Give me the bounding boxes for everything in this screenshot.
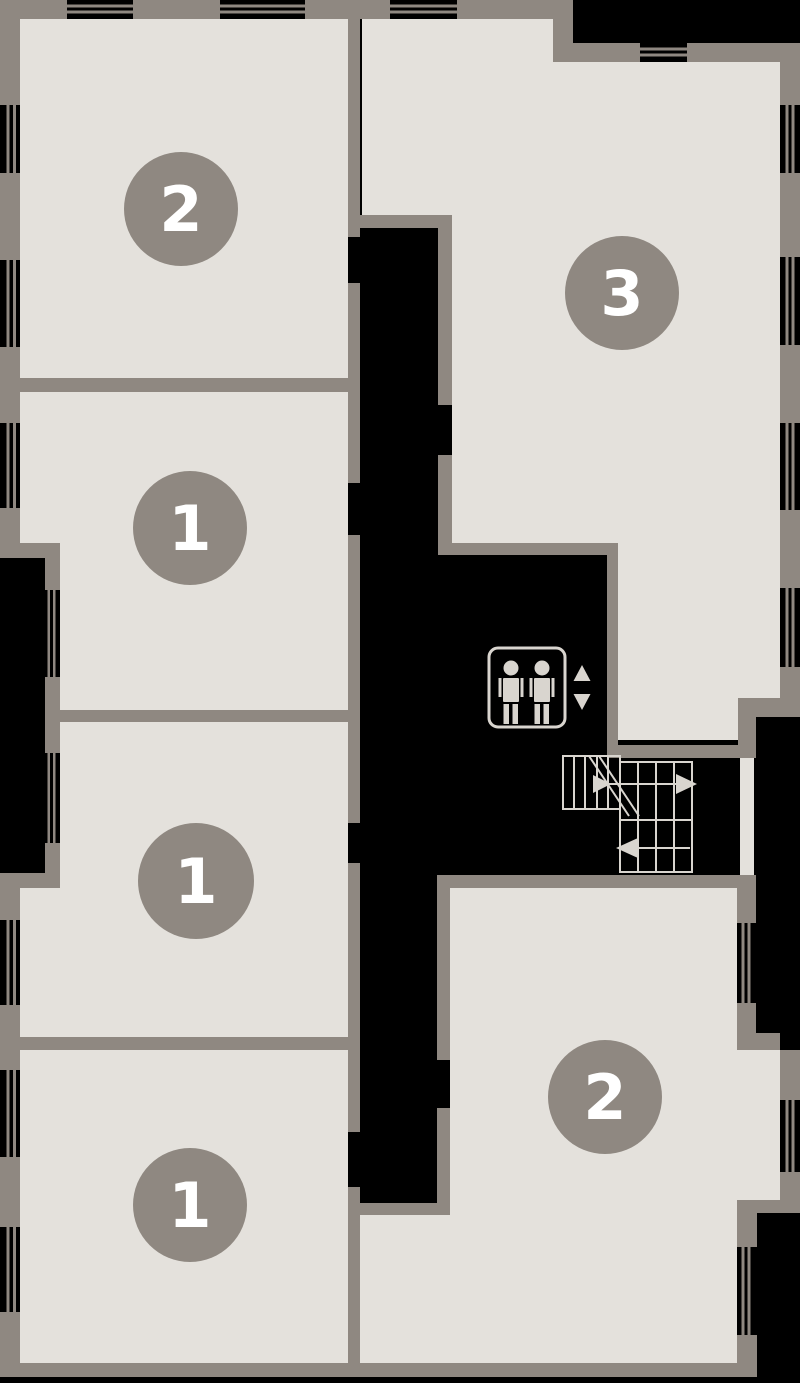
badge-label: 1 [168,1169,211,1242]
person-icon [499,661,524,725]
badge-label: 2 [159,173,202,246]
unit-badge-bottom-right[interactable]: 2 [548,1040,662,1154]
room-unit-top-right[interactable] [362,19,780,740]
unit-badge-left-lower[interactable]: 1 [133,1148,247,1262]
unit-badge-top-left[interactable]: 2 [124,152,238,266]
badge-label: 2 [583,1061,626,1134]
elevator-up-arrow-icon [574,665,591,681]
stairs-icon [563,756,697,872]
elevator-down-arrow-icon [574,694,591,710]
badge-label: 1 [174,845,217,918]
badge-label: 1 [168,492,211,565]
floor-plan: 2 3 1 1 1 2 [0,0,800,1383]
unit-badge-top-right[interactable]: 3 [565,236,679,350]
elevator-icon [489,648,591,727]
person-icon [530,661,555,725]
badge-label: 3 [600,257,643,330]
unit-badge-left-upper[interactable]: 1 [133,471,247,585]
unit-badge-left-middle[interactable]: 1 [138,823,254,939]
ledge-strip [740,758,754,875]
floor-plan-canvas: 2 3 1 1 1 2 [0,0,800,1383]
